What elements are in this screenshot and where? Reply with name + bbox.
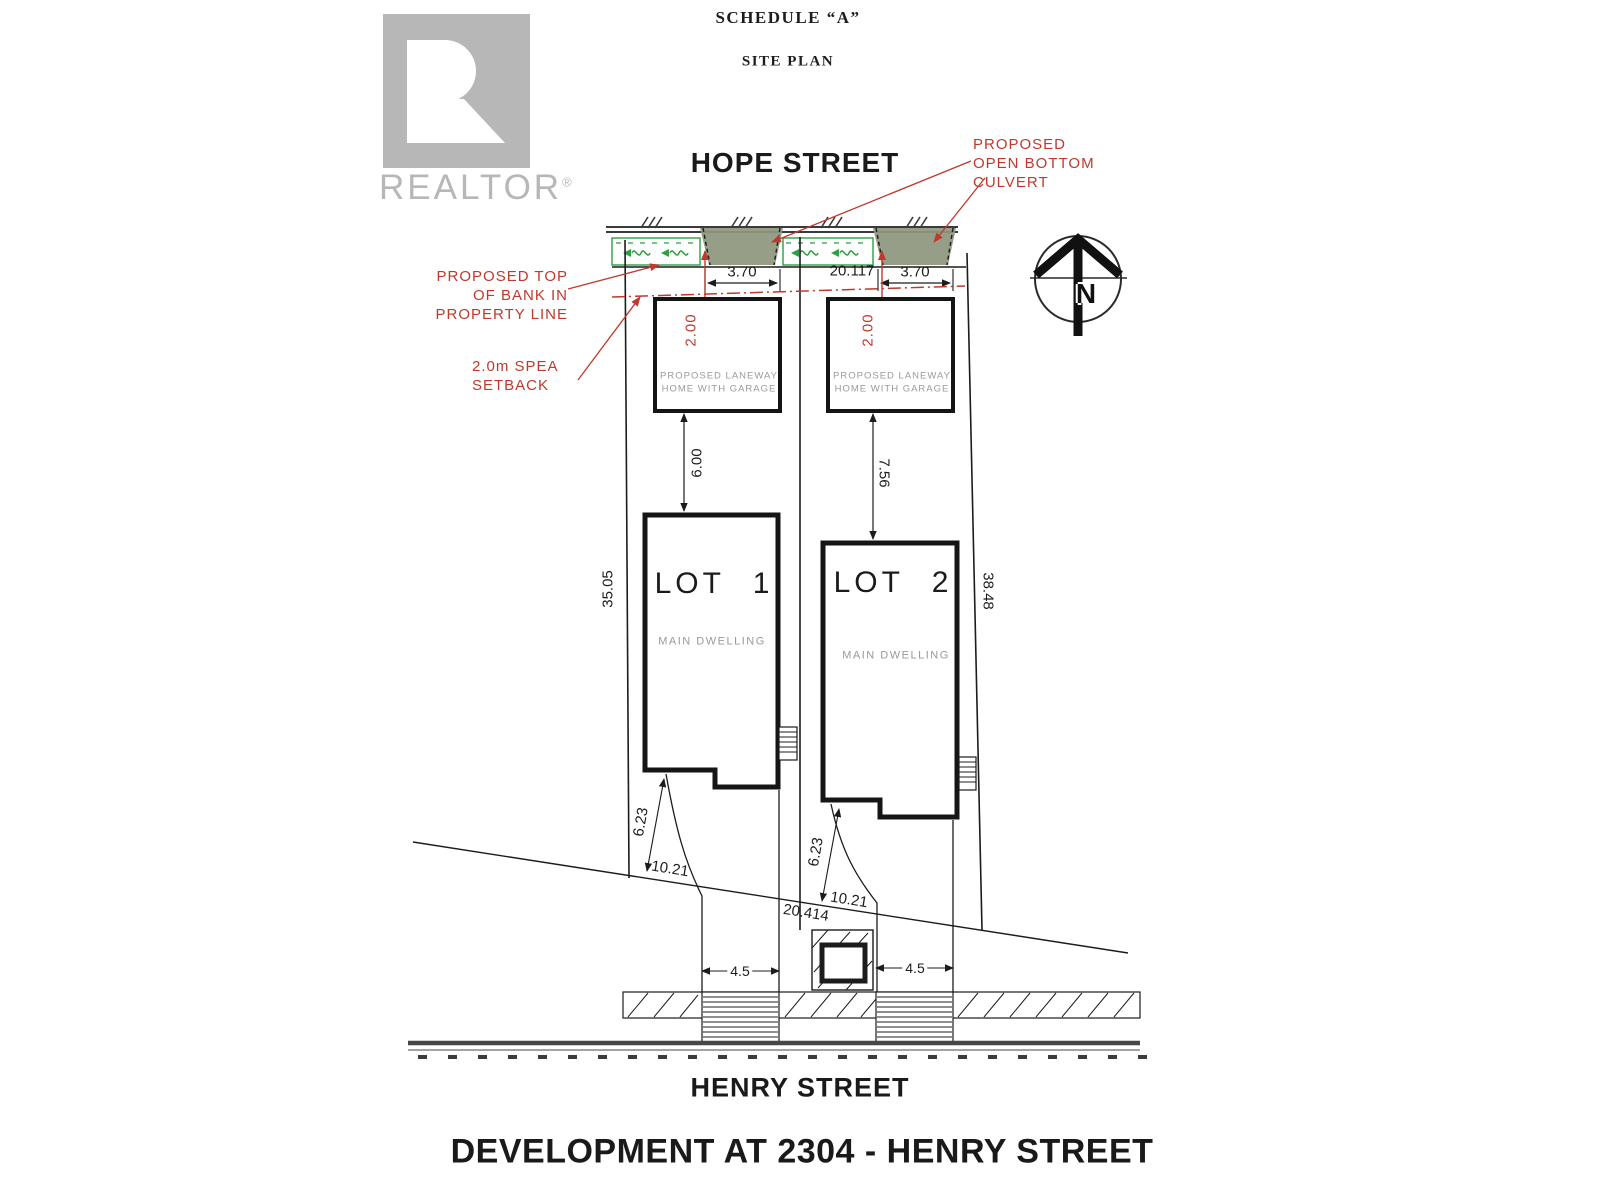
laneway-label-lot2-line2: HOME WITH GARAGE <box>835 385 950 396</box>
dim-depth-lot2: 38.48 <box>979 572 996 610</box>
culvert-annotation-line1: PROPOSED <box>973 136 1095 155</box>
lot2-dwelling-label: MAIN DWELLING <box>842 650 950 663</box>
henry-street-edge <box>408 1043 1147 1057</box>
culvert-annotation: PROPOSED OPEN BOTTOM CULVERT <box>973 136 1095 192</box>
site-plan-subtitle: SITE PLAN <box>742 53 834 70</box>
open-bottom-culverts <box>700 228 956 265</box>
spea-annotation-line2: SETBACK <box>472 377 559 396</box>
top-of-bank-annotation: PROPOSED TOP OF BANK IN PROPERTY LINE <box>430 268 568 324</box>
henry-street-label: HENRY STREET <box>690 1072 909 1103</box>
site-plan-drawing <box>0 0 1600 1200</box>
dim-culvert-width-lot2: 3.70 <box>900 263 929 280</box>
culvert-annotation-line3: CULVERT <box>973 174 1095 193</box>
schedule-title: SCHEDULE “A” <box>715 8 860 28</box>
lot1-dwelling-label: MAIN DWELLING <box>658 636 766 649</box>
realtor-watermark-text: REALTOR® <box>379 168 575 208</box>
realtor-brand: REALTOR <box>379 168 562 207</box>
development-title: DEVELOPMENT AT 2304 - HENRY STREET <box>451 1132 1154 1171</box>
spea-annotation-line1: 2.0m SPEA <box>472 358 559 377</box>
dim-depth-lot1: 35.05 <box>599 570 616 608</box>
bank-annotation-line3: PROPERTY LINE <box>430 306 568 325</box>
realtor-logo <box>383 14 530 168</box>
main-dwelling-outlines <box>645 515 957 817</box>
dim-spea-setback-lot2: 2.00 <box>860 313 879 346</box>
hope-street-label: HOPE STREET <box>691 147 900 179</box>
dim-laneway-gap-lot2: 7.56 <box>875 458 892 487</box>
lot2-name: LOT 2 <box>834 566 953 601</box>
bank-annotation-line2: OF BANK IN <box>430 287 568 306</box>
dim-driveway-lot1: 4.5 <box>727 963 752 979</box>
compass-north-label: N <box>1076 278 1096 310</box>
culvert-annotation-line2: OPEN BOTTOM <box>973 155 1095 174</box>
spea-setback-annotation: 2.0m SPEA SETBACK <box>472 358 559 396</box>
dim-driveway-lot2: 4.5 <box>902 960 927 976</box>
dim-spea-setback-lot1: 2.00 <box>683 313 702 346</box>
dim-culvert-width-lot1: 3.70 <box>727 263 756 280</box>
laneway-label-lot1-line1: PROPOSED LANEWAY <box>660 372 778 383</box>
laneway-label-lot1-line2: HOME WITH GARAGE <box>662 385 777 396</box>
laneway-label-lot2-line1: PROPOSED LANEWAY <box>833 372 951 383</box>
bank-annotation-line1: PROPOSED TOP <box>430 268 568 287</box>
catch-basin <box>812 930 873 990</box>
dim-laneway-gap-lot1: 6.00 <box>688 448 705 477</box>
registered-mark: ® <box>562 174 575 189</box>
site-plan-page: SCHEDULE “A” SITE PLAN REALTOR® HOPE STR… <box>0 0 1600 1200</box>
lot1-name: LOT 1 <box>655 567 774 602</box>
dim-site-frontage: 20.117 <box>830 262 875 279</box>
